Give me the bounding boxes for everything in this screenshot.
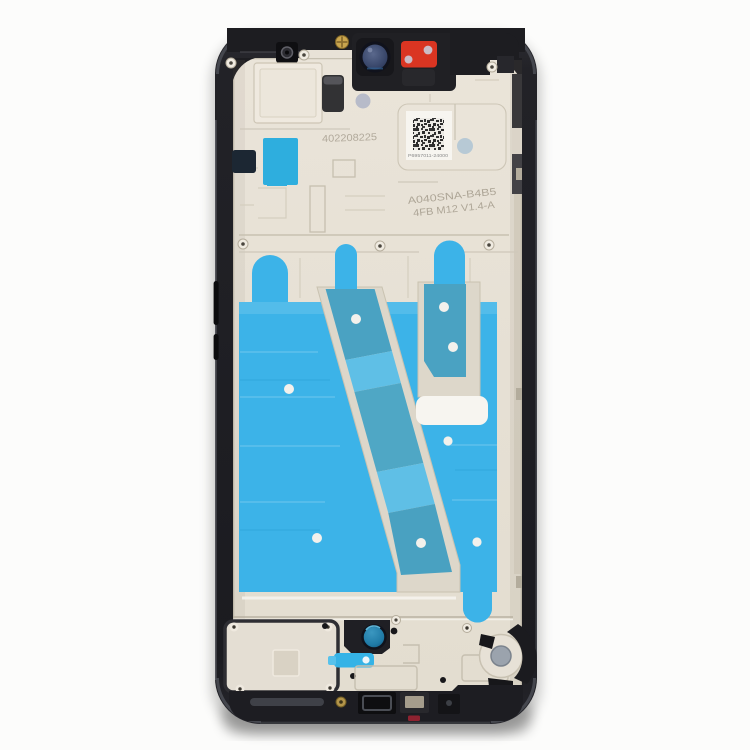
- svg-text:P6957011-24000: P6957011-24000: [408, 153, 449, 158]
- svg-text:402208225: 402208225: [322, 132, 378, 145]
